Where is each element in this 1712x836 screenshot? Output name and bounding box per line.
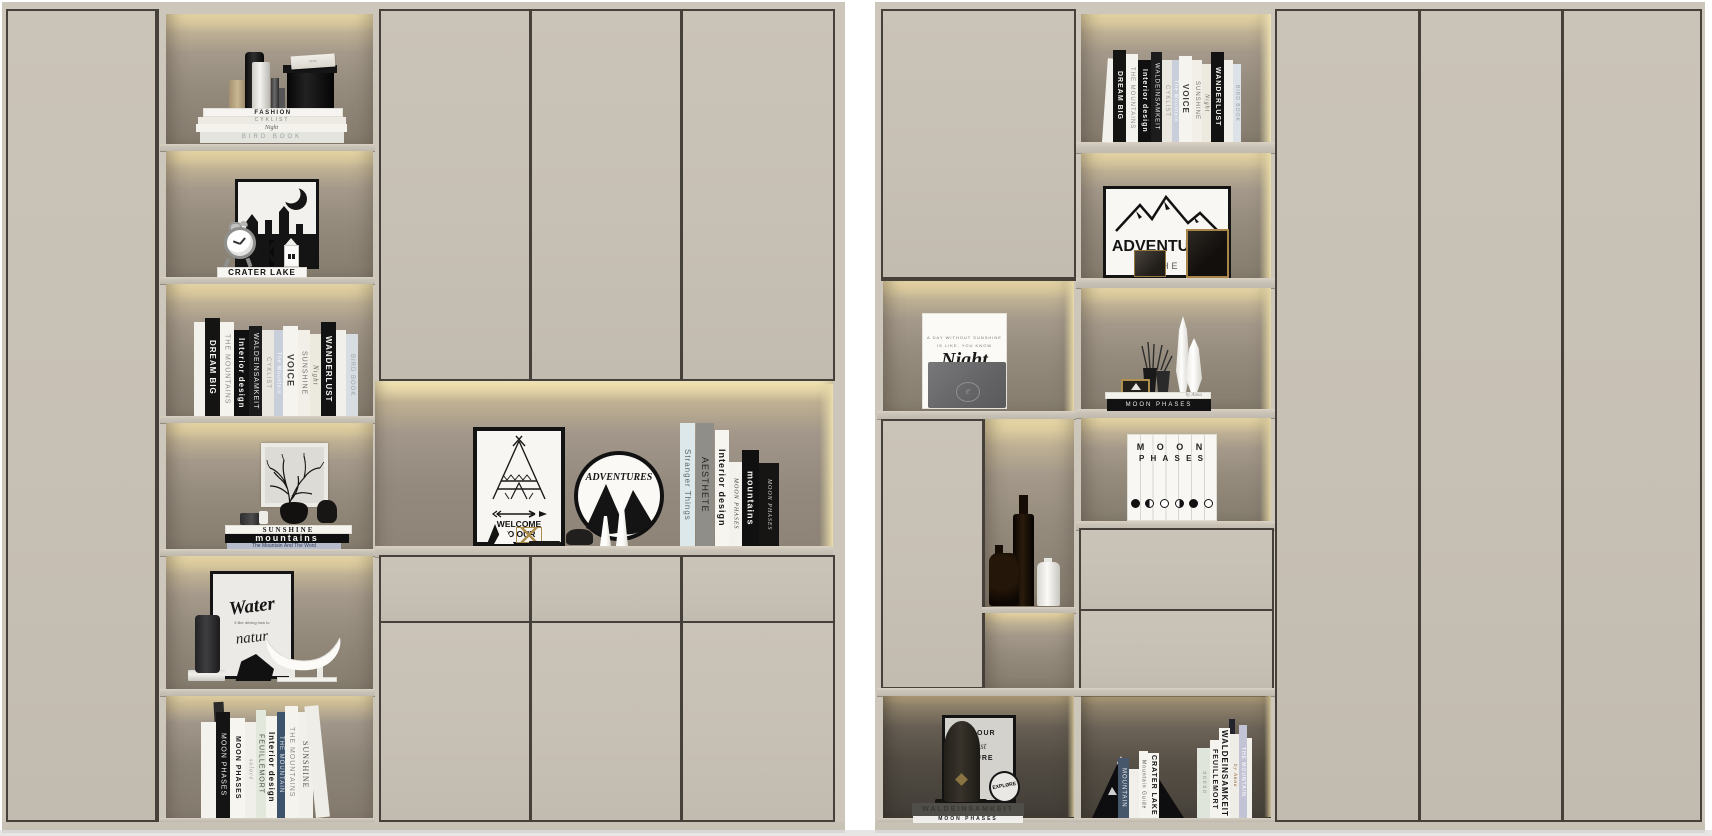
svg-text:ADVENTURES: ADVENTURES (585, 472, 653, 483)
